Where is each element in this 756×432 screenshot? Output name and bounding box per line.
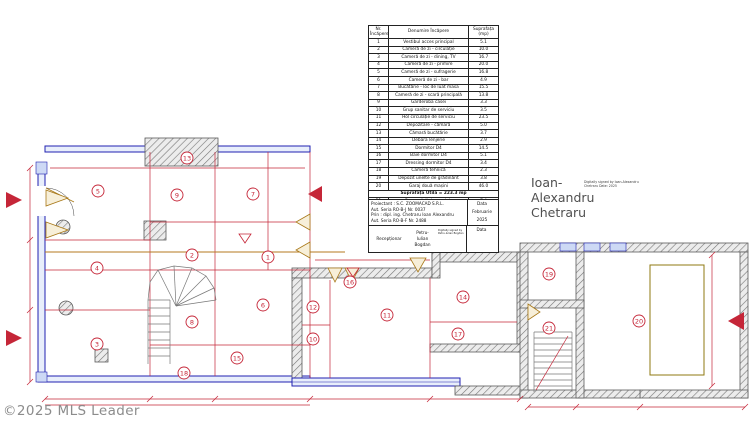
table-row: 15Dormitor D414.5 <box>369 145 499 153</box>
room-number-marker: 4 <box>91 262 103 274</box>
date-year: 2025 <box>468 217 496 223</box>
col-header-denumire: Denumire Încăpere <box>389 26 469 39</box>
table-cell: 10.0 <box>469 46 499 54</box>
table-cell: 20 <box>369 183 389 191</box>
room-number-marker: 7 <box>247 188 259 200</box>
svg-text:20: 20 <box>635 317 643 325</box>
watermark: ©2025 MLS Leader <box>3 403 140 419</box>
door-swing <box>296 214 310 230</box>
table-cell: 4 <box>369 61 389 69</box>
table-row: 6Cameră de zi - bar4.9 <box>369 77 499 85</box>
table-cell: Bucătărie - loc de luat masa <box>389 84 469 92</box>
col-header-nr: Nr. Încăpere <box>369 26 389 39</box>
table-cell: 15.5 <box>469 84 499 92</box>
table-row: 2Cameră de zi - circulație10.0 <box>369 46 499 54</box>
room-number-marker: 3 <box>91 338 103 350</box>
table-cell: 18 <box>369 167 389 175</box>
receptionar-signature-stamp: Digitally signed by Petru-Iulian Bogdan <box>436 226 466 252</box>
table-cell: 19 <box>369 175 389 183</box>
table-cell: Depozit unelte de grădinărit <box>389 175 469 183</box>
table-row: 8Cameră de zi - scară principală13.8 <box>369 92 499 100</box>
room-number-marker: 10 <box>307 333 319 345</box>
svg-text:5: 5 <box>96 187 100 195</box>
svg-text:19: 19 <box>545 270 553 278</box>
table-cell: 3.8 <box>469 175 499 183</box>
table-cell: 3.4 <box>469 160 499 168</box>
date-cell-2: Data <box>466 226 496 252</box>
table-cell: 17 <box>369 160 389 168</box>
table-cell: Garderoba casei <box>389 99 469 107</box>
svg-text:13: 13 <box>183 154 191 162</box>
table-row: 9Garderoba casei3.3 <box>369 99 499 107</box>
table-cell: 2.3 <box>469 167 499 175</box>
table-cell: 14 <box>369 137 389 145</box>
table-cell: 2.9 <box>469 137 499 145</box>
table-row: 14Debara lenjerie2.9 <box>369 137 499 145</box>
floor-plan-sheet: 123456789101112131415161718192021 Nr. În… <box>0 0 756 432</box>
svg-text:17: 17 <box>454 330 462 338</box>
receptionar-name: Petru-Iulian Bogdan <box>409 226 436 252</box>
room-number-marker: 8 <box>186 316 198 328</box>
table-cell: 5 <box>369 69 389 77</box>
svg-text:12: 12 <box>309 303 317 311</box>
room-number-marker: 19 <box>543 268 555 280</box>
date-label: Data <box>468 201 496 207</box>
svg-text:15: 15 <box>233 354 241 362</box>
title-block: Proiectant : S.C. ZOOMACAD S.R.L. Aut. S… <box>368 199 499 253</box>
table-cell: Debara lenjerie <box>389 137 469 145</box>
svg-text:9: 9 <box>175 191 179 199</box>
table-cell: 5.1 <box>469 39 499 47</box>
table-cell: 15 <box>369 145 389 153</box>
room-number-marker: 12 <box>307 301 319 313</box>
svg-text:4: 4 <box>95 264 99 272</box>
svg-text:2: 2 <box>190 251 194 259</box>
svg-text:3: 3 <box>95 340 99 348</box>
table-cell: Cameră de zi - primire <box>389 61 469 69</box>
date-cell: Data Februarie 2025 <box>467 200 496 225</box>
svg-text:8: 8 <box>190 318 194 326</box>
table-cell: Hol circulație de serviciu <box>389 114 469 122</box>
table-cell: Dormitor D4 <box>389 145 469 153</box>
table-cell: 13 <box>369 130 389 138</box>
table-cell: 16.8 <box>469 69 499 77</box>
garage-parking-outline <box>650 265 704 375</box>
exterior-walls-left-wing <box>36 146 310 382</box>
svg-text:18: 18 <box>180 369 188 377</box>
table-cell: 20.0 <box>469 61 499 69</box>
table-row: 1Vestibul acces principal5.1 <box>369 39 499 47</box>
table-row: 17Dressing dormitor D43.4 <box>369 160 499 168</box>
svg-text:11: 11 <box>383 311 391 319</box>
main-staircase <box>148 266 216 364</box>
svg-text:14: 14 <box>459 293 467 301</box>
table-cell: 3.7 <box>469 130 499 138</box>
room-number-marker: 2 <box>186 249 198 261</box>
table-cell: 12 <box>369 122 389 130</box>
digital-signature: Ioan-Alexandru Chetraru Digitally signed… <box>531 176 643 220</box>
table-row: 4Cameră de zi - primire20.0 <box>369 61 499 69</box>
table-cell: 2 <box>369 46 389 54</box>
table-cell: 16.7 <box>469 54 499 62</box>
table-cell: 9 <box>369 99 389 107</box>
room-number-marker: 5 <box>92 185 104 197</box>
table-cell: Cămară bucătărie <box>389 130 469 138</box>
receptionar-label: Recepționar <box>369 226 409 252</box>
table-row: 18Cameră tehnică2.3 <box>369 167 499 175</box>
table-cell: Baie dormitor D4 <box>389 152 469 160</box>
table-cell: Cameră de zi - circulație <box>389 46 469 54</box>
table-cell: 8 <box>369 92 389 100</box>
svg-text:1: 1 <box>266 253 270 261</box>
table-cell: 4.9 <box>469 77 499 85</box>
proiectant-info: Proiectant : S.C. ZOOMACAD S.R.L. Aut. S… <box>369 200 467 225</box>
signature-name: Ioan-Alexandru Chetraru <box>531 176 581 220</box>
table-row: Suprafața Utilă = 223.3 mp <box>369 190 499 198</box>
date-label: Data <box>467 227 496 233</box>
table-row: 12Depozitare - cămară5.0 <box>369 122 499 130</box>
table-cell: 10 <box>369 107 389 115</box>
room-number-marker: 20 <box>633 315 645 327</box>
table-cell: 11 <box>369 114 389 122</box>
table-cell: Grup sanitar de serviciu <box>389 107 469 115</box>
table-cell: 5.0 <box>469 122 499 130</box>
door-swing <box>296 242 310 258</box>
room-number-marker: 6 <box>257 299 269 311</box>
room-number-marker: 18 <box>178 367 190 379</box>
table-cell: Cameră de zi - bar <box>389 77 469 85</box>
table-cell: Cameră tehnică <box>389 167 469 175</box>
room-number-marker: 15 <box>231 352 243 364</box>
table-cell: 5.1 <box>469 152 499 160</box>
svg-text:10: 10 <box>309 335 317 343</box>
table-cell: 14.5 <box>469 145 499 153</box>
room-number-marker: 9 <box>171 189 183 201</box>
table-cell: Garaj două mașini <box>389 183 469 191</box>
table-row: 3Cameră de zi - dining, TV16.7 <box>369 54 499 62</box>
table-cell: Cameră de zi - dining, TV <box>389 54 469 62</box>
table-cell: 46.0 <box>469 183 499 191</box>
svg-text:7: 7 <box>251 190 255 198</box>
table-row: 7Bucătărie - loc de luat masa15.5 <box>369 84 499 92</box>
room-number-marker: 21 <box>543 322 555 334</box>
room-number-marker: 11 <box>381 309 393 321</box>
table-cell: Dressing dormitor D4 <box>389 160 469 168</box>
svg-text:21: 21 <box>545 324 553 332</box>
table-cell: 7 <box>369 84 389 92</box>
room-number-marker: 14 <box>457 291 469 303</box>
room-number-marker: 1 <box>262 251 274 263</box>
date-month: Februarie <box>468 209 496 215</box>
room-number-marker: 16 <box>344 276 356 288</box>
table-cell: 13.8 <box>469 92 499 100</box>
svg-text:16: 16 <box>346 278 354 286</box>
signature-details: Digitally signed by Ioan-Alexandru Chetr… <box>584 176 640 220</box>
svg-text:6: 6 <box>261 301 265 309</box>
room-schedule-table: Nr. Încăpere Denumire Încăpere Suprafața… <box>368 25 499 213</box>
table-cell: Depozitare - cămară <box>389 122 469 130</box>
table-row: 16Baie dormitor D45.1 <box>369 152 499 160</box>
door-swing <box>46 190 68 206</box>
table-row: 20Garaj două mașini46.0 <box>369 183 499 191</box>
proiectant-line: Aut. Seria RO-B-F Nr. 2488 <box>371 218 465 224</box>
table-row: 19Depozit unelte de grădinărit3.8 <box>369 175 499 183</box>
table-cell: 23.5 <box>469 114 499 122</box>
table-row: 11Hol circulație de serviciu23.5 <box>369 114 499 122</box>
col-header-suprafata: Suprafața (mp) <box>469 26 499 39</box>
table-row: 5Cameră de zi - sufragerie16.8 <box>369 69 499 77</box>
table-cell: Vestibul acces principal <box>389 39 469 47</box>
service-staircase <box>534 332 572 392</box>
table-cell: 16 <box>369 152 389 160</box>
table-cell: Cameră de zi - sufragerie <box>389 69 469 77</box>
table-row: 13Cămară bucătărie3.7 <box>369 130 499 138</box>
table-cell: 6 <box>369 77 389 85</box>
table-cell: 3 <box>369 54 389 62</box>
table-cell: Cameră de zi - scară principală <box>389 92 469 100</box>
table-cell: 1 <box>369 39 389 47</box>
table-cell: 3.3 <box>469 99 499 107</box>
table-row: 10Grup sanitar de serviciu3.5 <box>369 107 499 115</box>
table-cell: 3.5 <box>469 107 499 115</box>
room-number-marker: 17 <box>452 328 464 340</box>
table-cell: Suprafața Utilă = 223.3 mp <box>369 190 499 198</box>
room-number-marker: 13 <box>181 152 193 164</box>
